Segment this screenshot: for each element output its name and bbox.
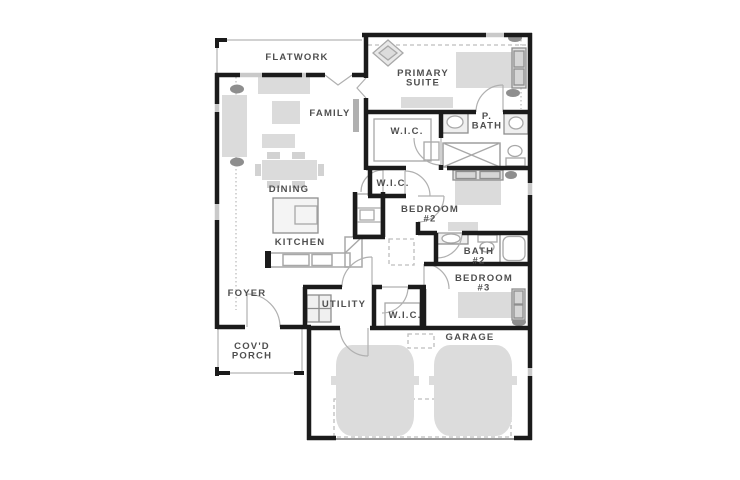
dining-chair: [267, 152, 280, 159]
room-label-dining: DINING: [269, 184, 309, 195]
bath2-tub: [500, 233, 528, 264]
attic-access-garage: [408, 334, 434, 348]
room-label-garage: GARAGE: [446, 332, 495, 343]
room-label-wic-bedroom3: W.I.C.: [388, 310, 421, 321]
room-label-line: SUITE: [406, 78, 440, 89]
attic-access-hall: [389, 239, 414, 265]
console-table: [258, 77, 310, 94]
room-label-line: BATH: [472, 121, 502, 132]
nightstand-lamp: [505, 171, 517, 179]
room-label-line: GARAGE: [446, 332, 495, 343]
dining-chair: [292, 152, 305, 159]
toilet-bowl: [508, 146, 522, 157]
car-mirror: [429, 376, 435, 385]
primary-pillow: [514, 51, 524, 67]
dining-chair: [318, 164, 324, 176]
room-label-line: W.I.C.: [376, 178, 409, 189]
room-label-line: UTILITY: [322, 299, 366, 310]
room-label-foyer: FOYER: [228, 288, 267, 299]
porch-corner: [215, 371, 230, 375]
bedroom3-bed: [458, 292, 512, 318]
room-label-line: DINING: [269, 184, 309, 195]
floor-plan-page: FLATWORKPRIMARYSUITEFAMILYW.I.C.P.BATHW.…: [0, 0, 740, 480]
room-label-primary-suite: PRIMARYSUITE: [397, 68, 449, 89]
sofa: [222, 95, 247, 157]
bedroom3-pillow: [514, 305, 523, 318]
bedroom2-pillow: [480, 172, 500, 179]
tv: [353, 99, 359, 132]
nightstand-lamp: [506, 89, 520, 97]
coffee-table: [272, 101, 300, 124]
bath2-tub-inner: [503, 237, 525, 261]
primary-dresser: [401, 97, 453, 108]
room-label-line: #2: [473, 256, 486, 267]
room-label-flatwork: FLATWORK: [265, 52, 328, 63]
room-label-wic-primary: W.I.C.: [390, 126, 423, 137]
floor-lamp: [230, 85, 244, 94]
porch-corner: [294, 371, 304, 375]
car: [336, 345, 414, 436]
room-label-bedroom-2: BEDROOM#2: [401, 204, 459, 225]
bath2-toilet-tank: [478, 235, 497, 242]
primary-bed: [456, 52, 512, 88]
bath2-sink: [442, 234, 460, 243]
primary-pillow: [514, 69, 524, 85]
kitchen-sink-cabinet: [312, 255, 332, 266]
room-label-line: #2: [424, 214, 437, 225]
bedroom3-pillow: [514, 291, 523, 304]
toilet-tank: [506, 158, 525, 166]
bedroom2-bed: [455, 180, 501, 205]
car-mirror: [511, 376, 517, 385]
room-label-covd-porch: COV'DPORCH: [232, 341, 272, 362]
room-label-kitchen: KITCHEN: [275, 237, 326, 248]
pbath-sink: [509, 117, 523, 129]
dining-table: [262, 160, 317, 180]
room-label-line: KITCHEN: [275, 237, 326, 248]
car-mirror: [413, 376, 419, 385]
room-label-p-bath: P.BATH: [472, 111, 502, 132]
room-label-line: PORCH: [232, 351, 272, 362]
room-label-line: W.I.C.: [390, 126, 423, 137]
kitchen-corner-diagonal: [345, 237, 362, 253]
room-label-line: FLATWORK: [265, 52, 328, 63]
bedroom2-pillow: [456, 172, 476, 179]
bedroom2-dresser: [448, 222, 478, 231]
car-mirror: [331, 376, 337, 385]
bedroom3-door-arc: [424, 264, 449, 289]
room-label-family: FAMILY: [309, 108, 350, 119]
suite-entry-door: [357, 78, 366, 98]
car: [434, 345, 512, 436]
room-label-utility: UTILITY: [322, 299, 366, 310]
pbath-sink: [447, 116, 463, 128]
pantry-box: [360, 210, 374, 220]
rear-french-door: [325, 75, 352, 85]
floor-lamp: [230, 158, 244, 167]
utility-door-arc: [342, 257, 372, 287]
kitchen-range: [283, 255, 309, 266]
floor-plan-drawing: FLATWORKPRIMARYSUITEFAMILYW.I.C.P.BATHW.…: [0, 0, 740, 480]
wall-chunk: [265, 251, 271, 268]
ottoman: [262, 134, 295, 148]
suite-bath-door-arc: [476, 85, 503, 112]
dining-chair: [255, 164, 261, 176]
room-label-bedroom-3: BEDROOM#3: [455, 273, 513, 294]
room-label-line: FAMILY: [309, 108, 350, 119]
room-label-line: W.I.C.: [388, 310, 421, 321]
room-label-line: FOYER: [228, 288, 267, 299]
kitchen-corner-counter: [345, 237, 362, 267]
flatwork-corner: [215, 38, 227, 42]
room-label-line: #3: [478, 283, 491, 294]
room-label-wic-hall: W.I.C.: [376, 178, 409, 189]
